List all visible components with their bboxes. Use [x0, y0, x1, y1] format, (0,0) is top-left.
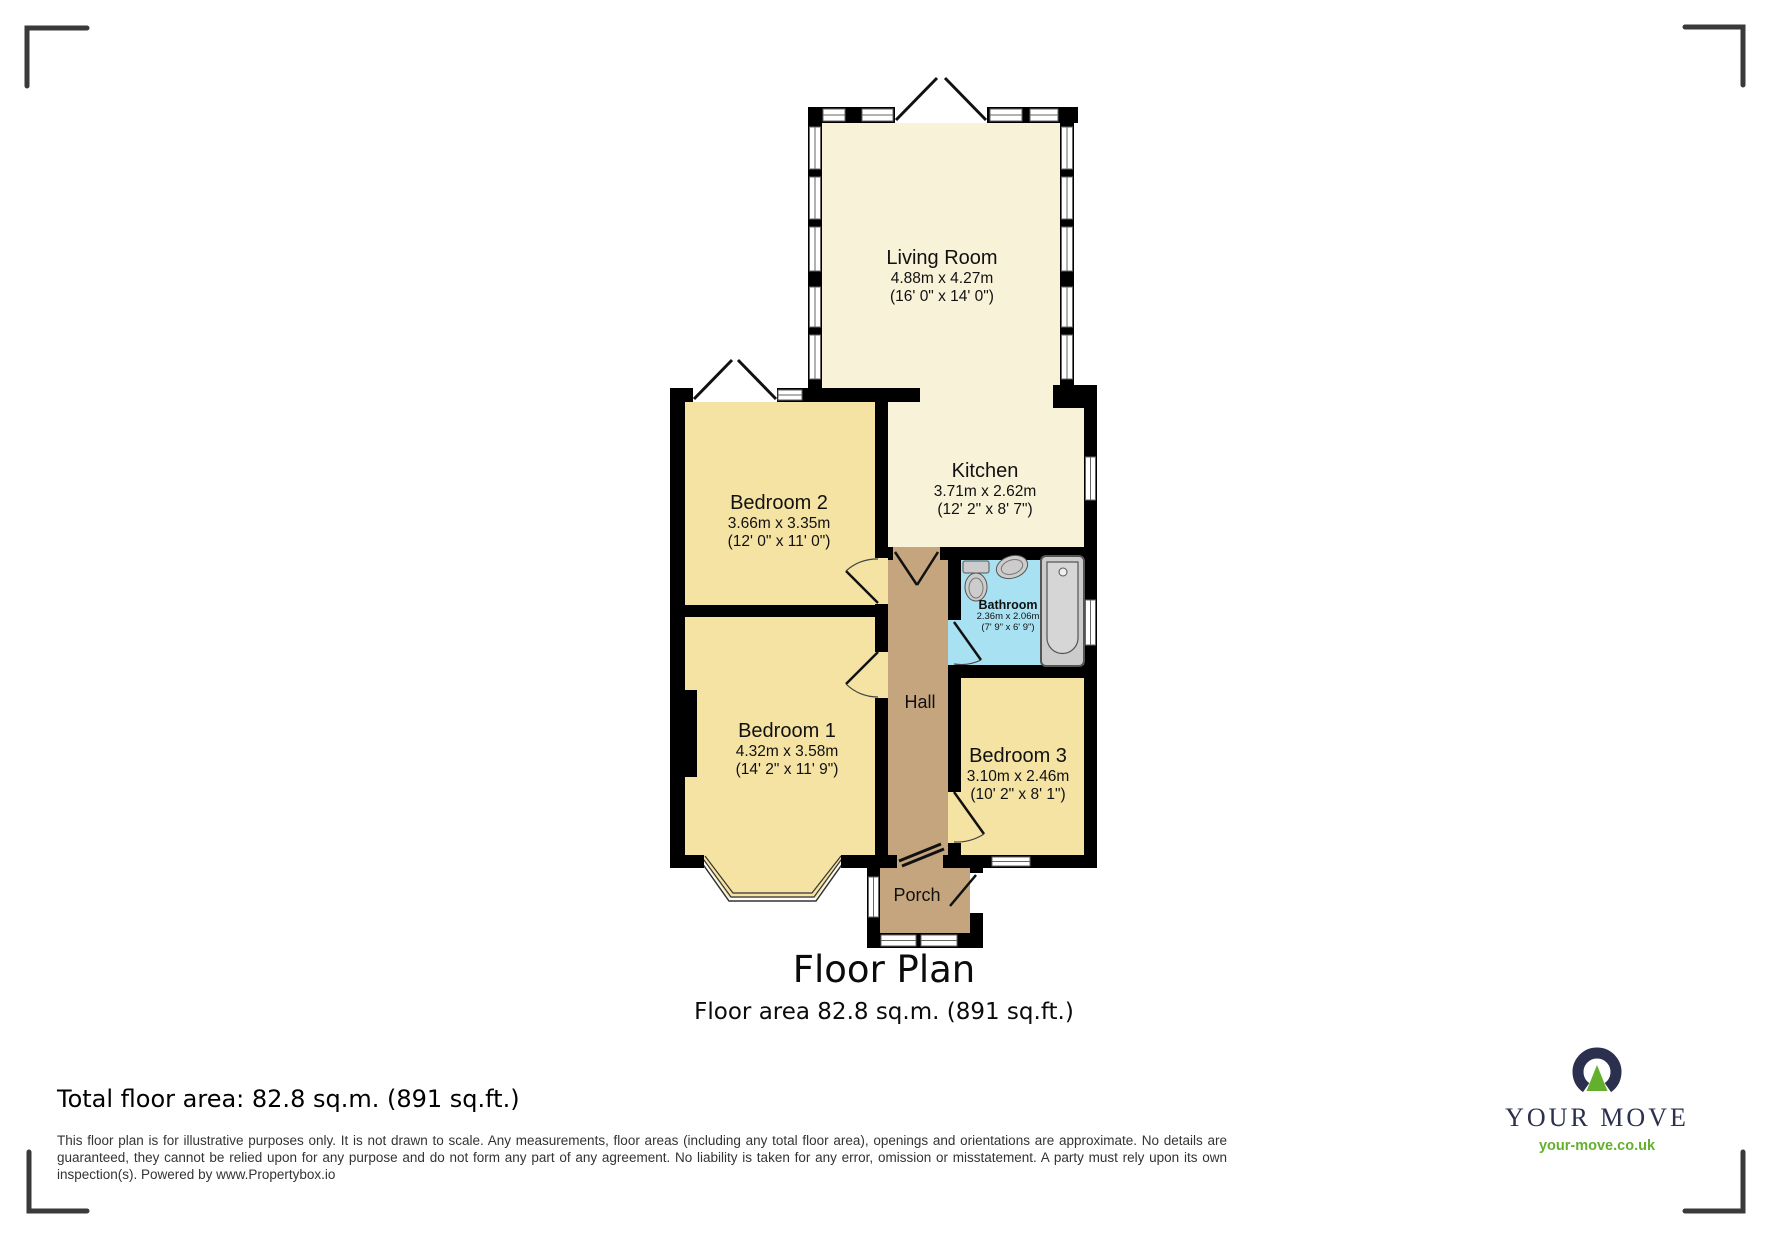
your-move-logo-icon: [1568, 1046, 1626, 1100]
bathtub-icon: [1041, 556, 1084, 666]
room-label-bedroom-3: Bedroom 3 3.10m x 2.46m (10' 2" x 8' 1"): [967, 745, 1070, 804]
room-label-bedroom-2: Bedroom 2 3.66m x 3.35m (12' 0" x 11' 0"…: [728, 492, 831, 551]
logo-website-text: your-move.co.uk: [1502, 1138, 1692, 1154]
room-name: Kitchen: [934, 460, 1037, 483]
room-dimensions-metric: 3.71m x 2.62m: [934, 483, 1037, 501]
logo-brand-text: YOUR MOVE: [1502, 1103, 1692, 1133]
room-label-porch: Porch: [893, 885, 940, 906]
toilet-icon: [963, 561, 989, 601]
floor-plan-page: Living Room 4.88m x 4.27m (16' 0" x 14' …: [0, 0, 1771, 1239]
room-label-bedroom-1: Bedroom 1 4.32m x 3.58m (14' 2" x 11' 9"…: [736, 720, 839, 779]
your-move-logo: YOUR MOVE your-move.co.uk: [1502, 1046, 1692, 1154]
room-name: Bedroom 1: [736, 720, 839, 743]
room-dimensions-imperial: (10' 2" x 8' 1"): [967, 786, 1070, 804]
room-dimensions-metric: 3.66m x 3.35m: [728, 515, 831, 533]
room-dimensions-imperial: (12' 2" x 8' 7"): [934, 501, 1037, 519]
room-dimensions-imperial: (16' 0" x 14' 0"): [886, 288, 997, 306]
room-name: Bedroom 2: [728, 492, 831, 515]
room-name: Living Room: [886, 247, 997, 270]
room-dimensions-metric: 4.32m x 3.58m: [736, 743, 839, 761]
disclaimer-text: This floor plan is for illustrative purp…: [57, 1132, 1227, 1183]
room-dimensions-imperial: (12' 0" x 11' 0"): [728, 533, 831, 551]
floor-area-subtitle: Floor area 82.8 sq.m. (891 sq.ft.): [694, 999, 1074, 1025]
room-name: Bedroom 3: [967, 745, 1070, 768]
room-dimensions-metric: 4.88m x 4.27m: [886, 270, 997, 288]
page-title: Floor Plan: [793, 948, 976, 991]
room-label-kitchen: Kitchen 3.71m x 2.62m (12' 2" x 8' 7"): [934, 460, 1037, 519]
room-dimensions-imperial: (14' 2" x 11' 9"): [736, 761, 839, 779]
room-label-bathroom: Bathroom 2.36m x 2.06m (7' 9" x 6' 9"): [977, 598, 1040, 634]
logo-triangle: [1587, 1065, 1608, 1091]
room-name: Hall: [904, 692, 935, 713]
room-dimensions-metric: 3.10m x 2.46m: [967, 768, 1070, 786]
total-floor-area-text: Total floor area: 82.8 sq.m. (891 sq.ft.…: [57, 1085, 520, 1113]
room-name: Bathroom: [977, 598, 1040, 612]
room-label-hall: Hall: [904, 692, 935, 713]
bay-window: [694, 855, 851, 901]
room-name: Porch: [893, 885, 940, 906]
room-dimensions-imperial: (7' 9" x 6' 9"): [977, 623, 1040, 634]
room-label-living-room: Living Room 4.88m x 4.27m (16' 0" x 14' …: [886, 247, 997, 306]
